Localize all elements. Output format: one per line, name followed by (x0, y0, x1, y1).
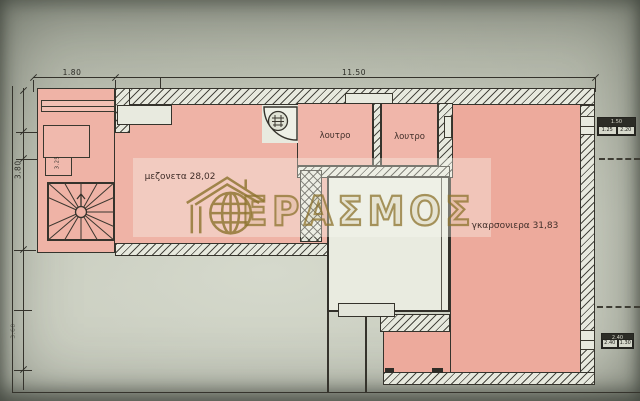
window-tag-bottom-cell: 2.40 (602, 339, 618, 348)
dimension-line-left (23, 88, 24, 390)
door-threshold-mark (432, 368, 443, 373)
floor-plan-photo: 1.80 11.50 3.80 3.60 3.25 μεζονετα 28,02 (0, 0, 640, 401)
window-tag-top-cell: 1.25 (598, 126, 617, 135)
closet (43, 125, 90, 158)
window-right-top (580, 116, 595, 135)
wall-pier (117, 105, 172, 125)
boundary-line-courtyard (327, 312, 329, 392)
watermark-text: ΕΡΑΣΜΟΣ (242, 192, 475, 232)
dashed-projection-line (597, 306, 640, 308)
dimension-label-1-80: 1.80 (52, 69, 92, 77)
dimension-line-top (33, 77, 595, 78)
dim-extension (595, 78, 596, 92)
dim-extension (14, 250, 36, 251)
staircase (47, 182, 115, 241)
window-right-bottom (580, 330, 595, 350)
room-label-studio: γκαρσονιερα 31,83 (448, 221, 582, 232)
dim-extension (33, 80, 34, 92)
room-studio-body (450, 105, 580, 372)
boundary-line-step (365, 317, 367, 392)
wall-partition (373, 103, 381, 166)
dimension-label-3-60: 3.60 (11, 311, 17, 351)
window-tag-top-header: 1.50 (598, 118, 635, 126)
window-tag-bottom-cell: 1.30 (618, 339, 634, 348)
window-tag-bottom: 2.40 2.40 1.30 (601, 333, 634, 349)
window-tag-top: 1.50 1.25 2.20 (597, 117, 636, 136)
step (338, 303, 395, 317)
room-studio-annex (383, 330, 450, 372)
dimension-label-3-25: 3.25 (56, 143, 61, 183)
dimension-label-3-80: 3.80 (14, 150, 22, 190)
wall-maisonette-bottom (115, 243, 330, 256)
dashed-projection-line (599, 158, 640, 160)
drain-symbol-icon (267, 110, 289, 132)
room-label-bath-2: λουτρο (381, 132, 438, 142)
room-label-maisonette: μεζονετα 28,02 (140, 172, 220, 183)
door-slot (444, 116, 452, 138)
wall-bottom (383, 372, 595, 385)
window-tag-top-cell: 2.20 (617, 126, 636, 135)
door-threshold-mark (385, 368, 394, 373)
wardrobe (41, 100, 115, 112)
room-label-bath-1: λουτρο (300, 131, 370, 141)
dimension-label-11-50: 11.50 (328, 69, 380, 77)
plot-boundary-bottom (12, 392, 640, 393)
